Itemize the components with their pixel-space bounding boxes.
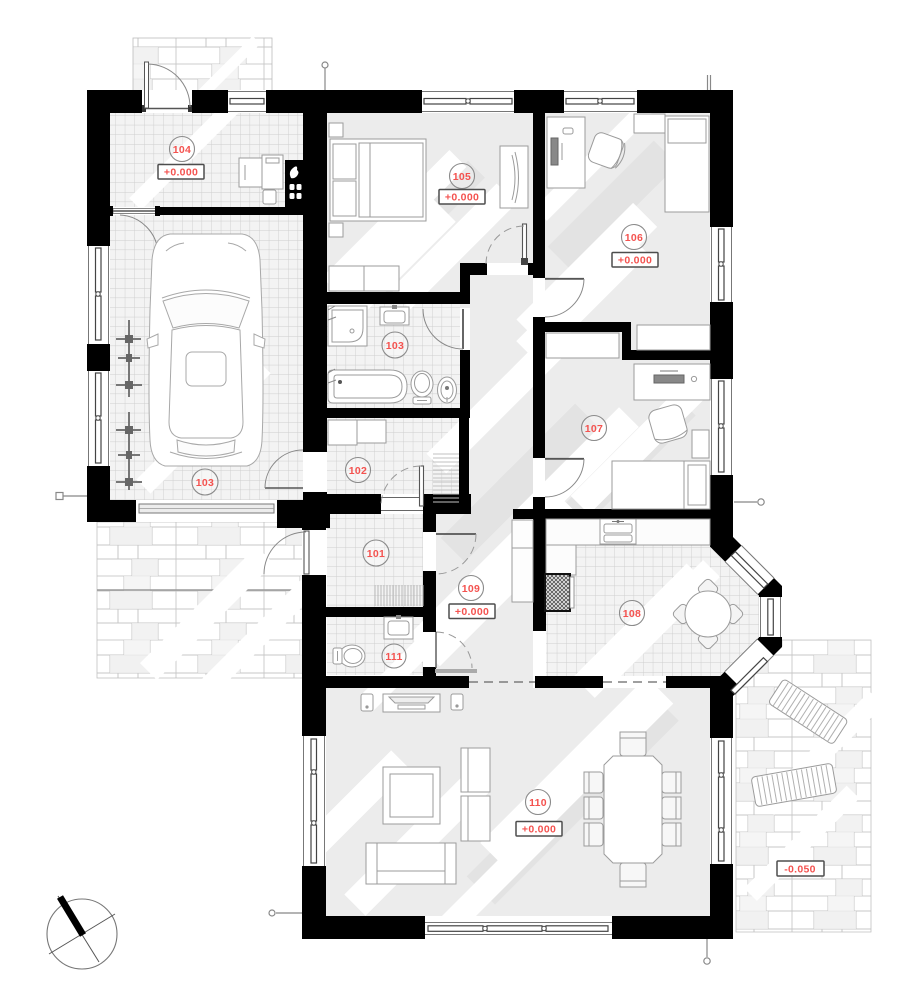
- svg-text:103: 103: [196, 477, 214, 489]
- svg-text:+0.000: +0.000: [522, 823, 556, 835]
- svg-text:101: 101: [367, 548, 385, 560]
- svg-text:105: 105: [453, 171, 471, 183]
- svg-text:104: 104: [173, 144, 191, 156]
- svg-text:110: 110: [529, 797, 547, 809]
- svg-text:108: 108: [623, 608, 641, 620]
- svg-text:102: 102: [349, 465, 367, 477]
- svg-text:106: 106: [625, 232, 643, 244]
- svg-text:+0.000: +0.000: [445, 191, 479, 203]
- svg-text:+0.000: +0.000: [455, 606, 489, 618]
- svg-text:-0.050: -0.050: [784, 863, 816, 875]
- svg-text:+0.000: +0.000: [618, 254, 652, 266]
- svg-text:103: 103: [386, 340, 404, 352]
- svg-text:111: 111: [385, 651, 402, 663]
- svg-text:107: 107: [585, 423, 603, 435]
- svg-text:109: 109: [462, 583, 480, 595]
- svg-text:+0.000: +0.000: [164, 166, 198, 178]
